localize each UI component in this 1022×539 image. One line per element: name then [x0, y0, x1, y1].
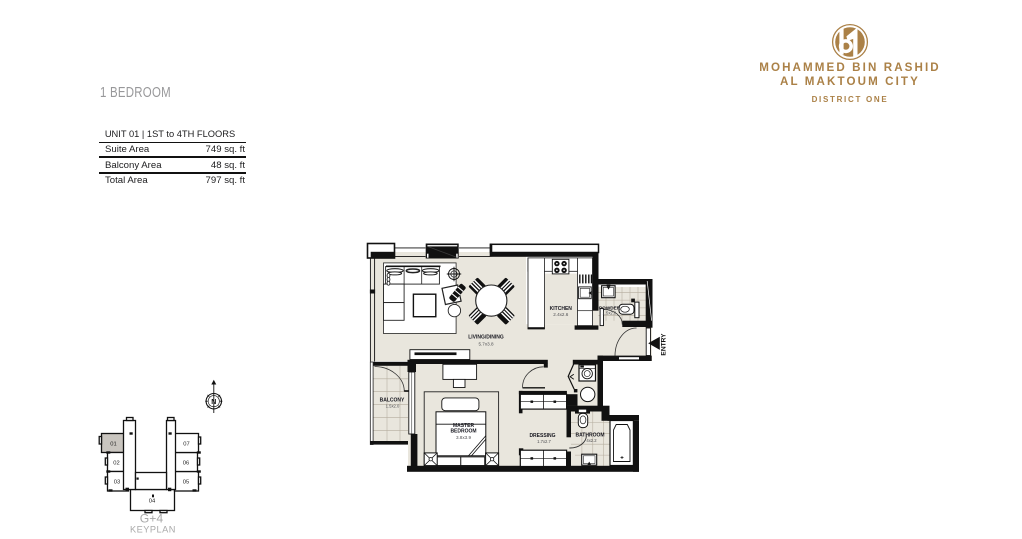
svg-text:5.7x3.8: 5.7x3.8 [478, 341, 494, 346]
svg-text:LIVING/DINING: LIVING/DINING [468, 335, 504, 341]
svg-text:BEDROOM: BEDROOM [450, 428, 476, 434]
svg-text:1.5x2.0: 1.5x2.0 [386, 403, 400, 408]
svg-text:02: 02 [113, 461, 119, 467]
svg-text:05: 05 [183, 480, 189, 486]
svg-text:4x2.2: 4x2.2 [586, 438, 597, 443]
svg-text:N: N [211, 399, 216, 406]
svg-text:1.5x2.0: 1.5x2.0 [603, 311, 617, 316]
svg-text:1.7x2.7: 1.7x2.7 [537, 439, 551, 444]
svg-text:2.4x2.6: 2.4x2.6 [553, 312, 569, 317]
svg-text:KEYPLAN: KEYPLAN [130, 525, 176, 535]
svg-text:3.8x3.9: 3.8x3.9 [456, 435, 472, 440]
svg-text:G+4: G+4 [140, 512, 164, 526]
svg-text:03: 03 [114, 480, 120, 486]
svg-text:KITCHEN: KITCHEN [550, 306, 573, 312]
svg-text:ENTRY: ENTRY [661, 333, 668, 356]
svg-text:04: 04 [149, 499, 156, 505]
svg-text:01: 01 [110, 442, 116, 448]
svg-text:07: 07 [183, 442, 189, 448]
svg-text:06: 06 [183, 461, 189, 467]
